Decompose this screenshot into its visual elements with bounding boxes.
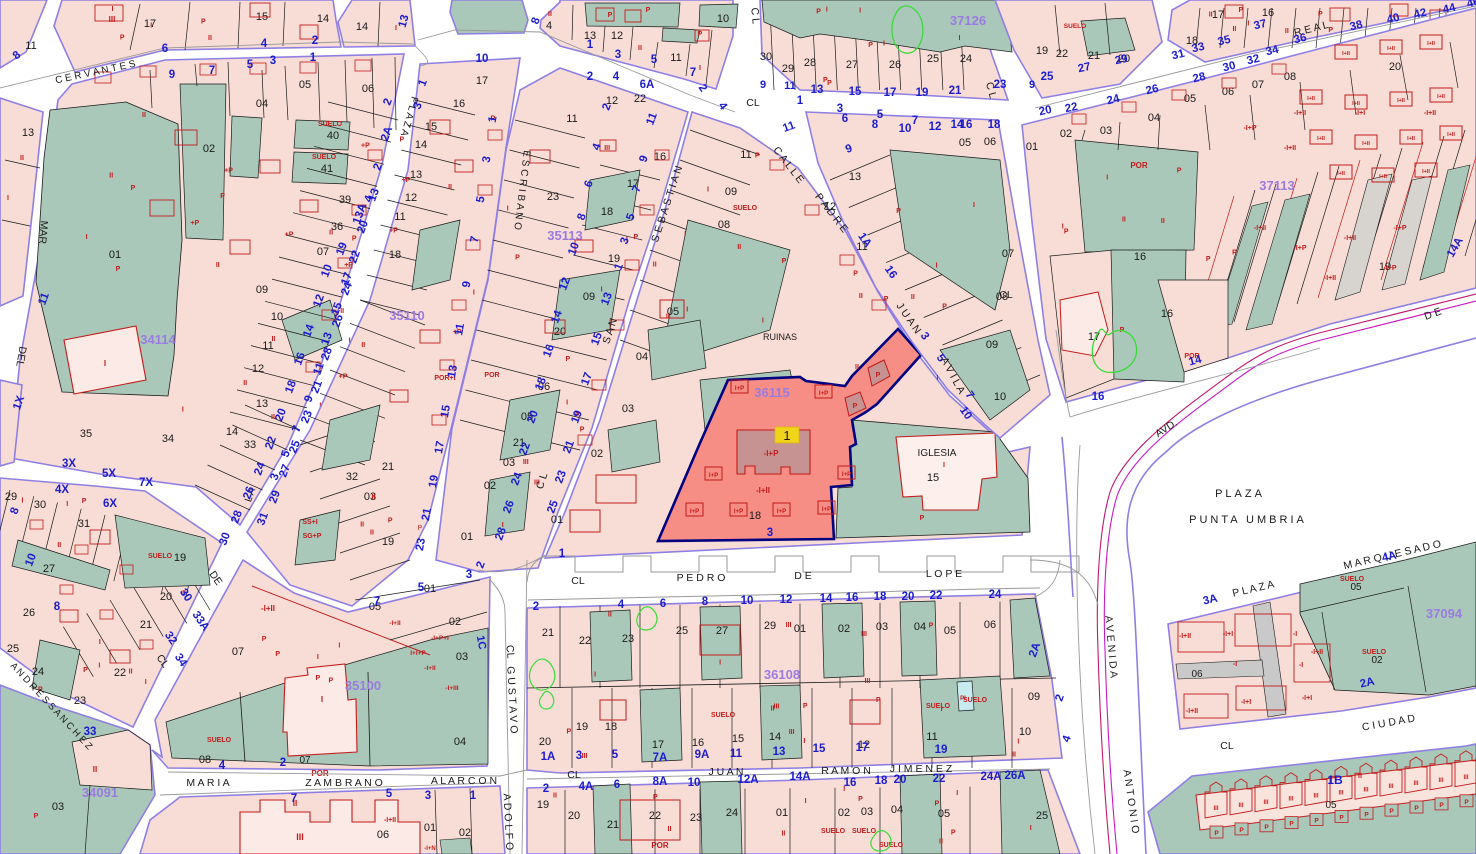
svg-text:9: 9 <box>760 79 766 91</box>
svg-text:03: 03 <box>52 801 64 813</box>
svg-text:-I+II: -I+II <box>756 486 770 495</box>
svg-text:24: 24 <box>32 666 44 678</box>
svg-text:-I+II: -I+II <box>1186 708 1198 715</box>
svg-text:I: I <box>507 206 509 213</box>
svg-text:SUELO: SUELO <box>821 828 846 835</box>
svg-text:04: 04 <box>914 621 926 633</box>
svg-text:II: II <box>737 244 741 251</box>
svg-text:25: 25 <box>1036 810 1048 822</box>
svg-text:I+II: I+II <box>1337 171 1345 177</box>
svg-text:II: II <box>1161 218 1165 225</box>
svg-text:III: III <box>1263 800 1268 806</box>
svg-text:1A: 1A <box>541 751 556 763</box>
svg-text:II: II <box>57 542 61 549</box>
svg-text:I: I <box>1017 738 1019 745</box>
svg-text:I+II: I+II <box>1447 132 1455 138</box>
svg-text:III: III <box>861 631 867 638</box>
svg-text:P: P <box>755 153 760 160</box>
svg-text:P: P <box>120 35 125 42</box>
svg-text:I: I <box>150 22 152 29</box>
svg-text:-I+II: -I+II <box>1179 633 1191 640</box>
svg-text:III: III <box>789 729 795 736</box>
svg-text:12: 12 <box>252 363 264 375</box>
svg-text:SUELO: SUELO <box>207 737 232 744</box>
svg-text:SUELO: SUELO <box>711 712 736 719</box>
svg-text:14: 14 <box>317 13 329 25</box>
svg-text:II: II <box>448 184 452 191</box>
svg-text:P: P <box>388 517 393 524</box>
svg-text:17: 17 <box>884 87 897 99</box>
svg-text:07: 07 <box>299 755 311 766</box>
svg-text:02: 02 <box>1371 655 1383 666</box>
svg-text:35113: 35113 <box>547 228 582 243</box>
svg-text:-I+III: -I+III <box>445 685 458 692</box>
svg-text:11: 11 <box>926 731 937 743</box>
svg-text:21: 21 <box>607 819 619 831</box>
svg-text:02: 02 <box>591 448 603 460</box>
svg-text:09: 09 <box>1028 691 1040 703</box>
svg-text:03: 03 <box>622 403 634 415</box>
svg-text:CL: CL <box>503 645 516 660</box>
svg-text:12: 12 <box>780 594 793 606</box>
svg-text:I: I <box>1106 175 1108 182</box>
svg-text:18: 18 <box>605 721 617 733</box>
svg-text:19: 19 <box>1036 45 1048 57</box>
svg-text:P: P <box>566 729 571 736</box>
svg-text:12: 12 <box>611 30 623 42</box>
svg-text:07: 07 <box>317 246 329 258</box>
svg-text:04: 04 <box>454 736 466 748</box>
svg-text:P: P <box>1364 811 1369 818</box>
svg-text:7: 7 <box>912 115 918 127</box>
svg-text:25: 25 <box>7 643 19 655</box>
svg-text:31: 31 <box>78 518 90 530</box>
svg-text:I: I <box>66 501 68 508</box>
svg-text:I: I <box>684 231 686 238</box>
svg-text:02: 02 <box>449 616 461 628</box>
svg-text:I+P: I+P <box>819 391 828 397</box>
svg-text:27: 27 <box>43 563 55 575</box>
svg-text:SS+I: SS+I <box>302 519 317 526</box>
svg-text:P: P <box>1314 818 1319 825</box>
svg-text:POR: POR <box>484 372 499 379</box>
svg-text:02: 02 <box>838 807 850 819</box>
svg-text:POR: POR <box>1130 161 1148 170</box>
svg-text:3: 3 <box>615 49 621 61</box>
svg-text:26A: 26A <box>1004 770 1025 782</box>
svg-text:III: III <box>1438 778 1443 784</box>
svg-text:I+II: I+II <box>1427 41 1435 47</box>
svg-text:20: 20 <box>160 591 172 603</box>
svg-text:I: I <box>941 706 943 713</box>
svg-text:-I+II: -I+II <box>1344 235 1356 242</box>
svg-text:37113: 37113 <box>1259 178 1294 193</box>
svg-text:6: 6 <box>162 43 168 55</box>
svg-text:27: 27 <box>846 59 858 71</box>
svg-text:III: III <box>523 459 529 466</box>
svg-text:I: I <box>958 35 960 42</box>
svg-text:03: 03 <box>861 806 873 818</box>
svg-text:5: 5 <box>386 788 393 800</box>
svg-text:17: 17 <box>476 75 488 87</box>
svg-text:15: 15 <box>813 743 826 755</box>
svg-text:01: 01 <box>424 583 436 595</box>
svg-text:-I+II: -I+II <box>384 817 396 824</box>
svg-text:4: 4 <box>618 599 625 611</box>
svg-text:I+II: I+II <box>1342 51 1350 57</box>
svg-text:II: II <box>608 612 612 619</box>
svg-text:9A: 9A <box>695 749 710 761</box>
svg-text:10: 10 <box>271 311 283 323</box>
svg-text:I+II: I+II <box>1437 94 1445 100</box>
svg-text:+P: +P <box>190 220 199 227</box>
svg-text:P: P <box>1464 799 1469 806</box>
svg-text:I+I+P: I+I+P <box>410 650 426 657</box>
svg-text:27: 27 <box>716 625 728 637</box>
svg-text:01: 01 <box>776 807 788 819</box>
svg-text:P: P <box>876 372 881 379</box>
svg-text:I+P: I+P <box>735 386 744 392</box>
svg-text:II: II <box>243 380 247 387</box>
svg-text:41: 41 <box>321 163 333 175</box>
svg-text:II: II <box>1012 752 1016 759</box>
svg-text:20: 20 <box>554 326 566 338</box>
svg-text:17: 17 <box>856 742 869 754</box>
svg-text:II: II <box>361 342 365 349</box>
svg-text:P: P <box>275 651 280 658</box>
svg-text:II: II <box>553 793 557 800</box>
svg-text:II: II <box>1358 773 1362 780</box>
svg-text:P: P <box>580 427 585 434</box>
svg-text:7A: 7A <box>653 752 668 764</box>
svg-text:09: 09 <box>725 186 737 198</box>
svg-text:23: 23 <box>414 537 428 552</box>
svg-text:P: P <box>853 403 858 410</box>
svg-text:II: II <box>329 229 333 236</box>
svg-text:CL: CL <box>571 575 585 587</box>
svg-text:P: P <box>220 193 225 200</box>
svg-text:4: 4 <box>219 760 226 772</box>
svg-text:II: II <box>142 112 146 119</box>
svg-text:I: I <box>112 6 114 13</box>
svg-text:09: 09 <box>256 284 268 296</box>
svg-text:-I+N: -I+N <box>424 846 436 852</box>
svg-text:R A M O N: R A M O N <box>821 765 871 777</box>
svg-text:02: 02 <box>459 827 471 839</box>
svg-text:I: I <box>182 407 184 414</box>
svg-text:21: 21 <box>949 85 962 97</box>
svg-text:I: I <box>473 289 475 296</box>
svg-text:11: 11 <box>394 211 405 223</box>
svg-text:8: 8 <box>54 601 61 613</box>
svg-text:+P: +P <box>361 142 370 149</box>
svg-text:I+P: I+P <box>709 473 718 479</box>
svg-text:I+II: I+II <box>1422 169 1430 175</box>
svg-text:23: 23 <box>622 633 634 645</box>
svg-text:21: 21 <box>542 627 554 639</box>
svg-text:II: II <box>109 172 113 179</box>
svg-text:I: I <box>699 65 701 72</box>
svg-text:SUELO: SUELO <box>312 154 337 161</box>
svg-text:4X: 4X <box>55 484 69 496</box>
svg-text:13: 13 <box>446 364 460 379</box>
svg-text:13: 13 <box>849 171 861 183</box>
svg-text:II: II <box>638 45 642 52</box>
svg-text:SUELO: SUELO <box>1064 23 1086 30</box>
svg-text:2: 2 <box>280 757 286 769</box>
svg-text:P: P <box>1439 802 1444 809</box>
svg-text:III: III <box>1338 790 1343 796</box>
svg-text:09: 09 <box>583 291 595 303</box>
svg-text:01: 01 <box>1026 141 1038 153</box>
svg-text:I: I <box>826 6 828 13</box>
svg-text:8: 8 <box>872 119 879 131</box>
svg-text:17: 17 <box>652 739 664 751</box>
svg-text:12A: 12A <box>737 774 758 786</box>
svg-text:P: P <box>1177 168 1182 175</box>
svg-text:II: II <box>855 364 859 371</box>
svg-text:P: P <box>1389 808 1394 815</box>
svg-text:II: II <box>372 494 376 501</box>
svg-text:16: 16 <box>960 119 973 131</box>
svg-text:II: II <box>548 11 552 18</box>
svg-text:-I: -I <box>1299 662 1303 669</box>
svg-text:II: II <box>781 830 785 837</box>
svg-text:P: P <box>935 800 940 807</box>
svg-text:24A: 24A <box>980 771 1001 783</box>
svg-text:I: I <box>686 307 688 314</box>
svg-text:III: III <box>1463 775 1468 781</box>
svg-text:07: 07 <box>232 646 244 658</box>
svg-text:16: 16 <box>1092 391 1105 403</box>
svg-text:16: 16 <box>846 592 859 604</box>
svg-text:5X: 5X <box>102 468 116 480</box>
svg-text:CL: CL <box>567 769 581 781</box>
svg-text:P: P <box>418 525 423 532</box>
svg-text:III: III <box>1363 787 1368 793</box>
svg-text:II: II <box>93 765 97 774</box>
svg-text:6: 6 <box>614 779 620 791</box>
svg-text:PLAZA: PLAZA <box>1215 488 1265 500</box>
svg-text:-I+II: -I+II <box>1254 225 1266 232</box>
svg-text:+P: +P <box>224 167 233 174</box>
svg-text:-I+P: -I+P <box>1383 265 1396 272</box>
svg-text:CL: CL <box>999 289 1013 301</box>
svg-text:II: II <box>1122 217 1126 224</box>
svg-text:I: I <box>707 187 709 194</box>
svg-text:III: III <box>1388 784 1393 790</box>
svg-text:17: 17 <box>433 440 447 455</box>
svg-text:I+II: I+II <box>1407 136 1415 142</box>
svg-text:15: 15 <box>425 121 437 133</box>
svg-text:III: III <box>1288 797 1293 803</box>
svg-text:14: 14 <box>769 731 781 743</box>
svg-text:19: 19 <box>576 721 588 733</box>
svg-text:4: 4 <box>546 20 552 32</box>
svg-text:05: 05 <box>959 137 971 149</box>
svg-text:10: 10 <box>899 123 912 135</box>
svg-text:D E: D E <box>794 570 812 582</box>
svg-text:P: P <box>803 703 808 710</box>
svg-text:39: 39 <box>339 194 351 206</box>
svg-text:II: II <box>859 293 863 300</box>
svg-text:7: 7 <box>291 793 297 805</box>
svg-text:20: 20 <box>894 774 907 786</box>
svg-text:III: III <box>1213 806 1218 812</box>
svg-text:22: 22 <box>579 635 591 647</box>
svg-text:23: 23 <box>547 191 559 203</box>
svg-text:21: 21 <box>382 461 394 473</box>
svg-text:I: I <box>86 234 88 241</box>
svg-text:I: I <box>1030 825 1032 832</box>
svg-text:III: III <box>1313 794 1318 800</box>
svg-text:P: P <box>399 136 404 143</box>
svg-text:I: I <box>936 375 938 382</box>
svg-text:I: I <box>321 695 323 704</box>
svg-text:14: 14 <box>820 593 833 605</box>
svg-text:19: 19 <box>537 799 549 811</box>
svg-text:I: I <box>145 679 147 686</box>
svg-text:11: 11 <box>566 113 577 125</box>
svg-text:46: 46 <box>1466 0 1476 10</box>
svg-text:16: 16 <box>1134 251 1146 263</box>
svg-text:6A: 6A <box>640 79 655 91</box>
svg-text:P: P <box>827 80 832 87</box>
svg-text:37126: 37126 <box>950 13 986 28</box>
svg-text:P E D R O: P E D R O <box>677 572 726 584</box>
svg-text:1: 1 <box>559 548 566 560</box>
svg-text:02: 02 <box>838 623 850 635</box>
svg-text:24: 24 <box>960 53 972 65</box>
svg-text:18: 18 <box>875 775 888 787</box>
svg-text:4: 4 <box>613 71 620 83</box>
svg-text:11: 11 <box>784 80 796 92</box>
svg-text:01: 01 <box>551 514 563 526</box>
svg-text:7: 7 <box>374 596 380 608</box>
svg-text:20: 20 <box>568 810 580 822</box>
svg-text:I: I <box>883 41 885 48</box>
svg-text:15: 15 <box>849 86 862 98</box>
svg-text:26: 26 <box>889 59 901 71</box>
svg-text:3: 3 <box>270 55 276 67</box>
svg-text:-I+P: -I+P <box>1293 245 1306 252</box>
svg-text:19: 19 <box>427 474 441 489</box>
svg-text:21: 21 <box>1088 50 1100 62</box>
svg-text:01: 01 <box>794 623 806 635</box>
svg-text:19: 19 <box>174 552 186 564</box>
svg-text:+P: +P <box>339 374 348 381</box>
svg-text:P: P <box>1232 249 1237 256</box>
svg-text:03: 03 <box>456 651 468 663</box>
svg-text:II: II <box>1209 11 1213 18</box>
svg-text:I+P: I+P <box>822 507 831 513</box>
svg-text:6: 6 <box>660 598 666 610</box>
svg-text:I: I <box>7 195 9 202</box>
svg-text:3: 3 <box>576 750 582 762</box>
svg-text:2: 2 <box>543 783 549 795</box>
svg-text:I: I <box>99 639 101 646</box>
svg-text:34: 34 <box>162 433 174 445</box>
svg-text:I+II: I+II <box>1307 96 1315 102</box>
svg-text:POR: POR <box>651 841 669 850</box>
svg-text:I: I <box>936 262 938 269</box>
svg-text:04: 04 <box>256 98 268 110</box>
svg-text:II: II <box>666 314 670 321</box>
svg-text:05: 05 <box>938 808 950 820</box>
svg-text:15: 15 <box>927 472 939 484</box>
svg-text:RUINAS: RUINAS <box>763 332 797 342</box>
svg-text:P: P <box>131 185 136 192</box>
svg-text:33: 33 <box>244 439 256 451</box>
svg-text:24: 24 <box>989 589 1002 601</box>
svg-text:P: P <box>608 12 613 19</box>
svg-text:I: I <box>805 798 807 805</box>
svg-text:I: I <box>943 462 945 469</box>
svg-text:I: I <box>98 662 100 669</box>
svg-text:29: 29 <box>764 620 776 632</box>
svg-text:SUELO: SUELO <box>963 697 988 704</box>
svg-text:13: 13 <box>773 746 786 758</box>
svg-text:-I+II: -I+II <box>261 604 275 613</box>
svg-text:P: P <box>83 667 88 674</box>
svg-text:23: 23 <box>994 79 1007 91</box>
svg-text:I+II: I+II <box>1397 98 1405 104</box>
svg-text:-I+P+I: -I+P+I <box>431 635 449 642</box>
svg-text:-I+II: -I+II <box>424 665 436 672</box>
svg-text:07: 07 <box>1002 248 1014 260</box>
svg-text:3: 3 <box>425 790 431 802</box>
svg-text:SG+P: SG+P <box>303 533 322 540</box>
svg-text:02: 02 <box>484 480 496 492</box>
svg-text:25: 25 <box>1041 71 1054 83</box>
svg-text:17: 17 <box>1212 9 1224 21</box>
svg-text:30: 30 <box>34 499 46 511</box>
svg-text:35110: 35110 <box>389 308 424 323</box>
svg-text:04: 04 <box>891 804 903 816</box>
svg-text:7X: 7X <box>139 477 153 489</box>
svg-text:34091: 34091 <box>82 785 118 800</box>
svg-text:19: 19 <box>382 536 394 548</box>
svg-text:1: 1 <box>587 39 594 51</box>
svg-text:CL: CL <box>1220 740 1234 752</box>
svg-text:-I+P: -I+P <box>764 449 780 458</box>
svg-text:P: P <box>262 636 267 643</box>
svg-text:PUNTA UMBRIA: PUNTA UMBRIA <box>1189 514 1307 526</box>
svg-text:8: 8 <box>702 596 709 608</box>
svg-text:I: I <box>594 671 596 678</box>
svg-text:-I+II: -I+II <box>1424 110 1436 117</box>
svg-text:I+II: I+II <box>1352 101 1360 107</box>
svg-text:I+P: I+P <box>842 472 851 478</box>
svg-text:I+II: I+II <box>1362 141 1370 147</box>
svg-text:9: 9 <box>169 69 175 81</box>
svg-text:3X: 3X <box>62 458 76 470</box>
svg-text:11: 11 <box>670 52 681 64</box>
svg-text:35: 35 <box>80 428 92 440</box>
svg-text:I+P: I+P <box>690 509 699 515</box>
svg-text:A L A R C O N: A L A R C O N <box>431 775 497 787</box>
svg-text:P: P <box>920 515 925 522</box>
svg-text:37094: 37094 <box>1426 606 1463 621</box>
svg-text:9: 9 <box>1029 79 1035 91</box>
svg-text:08: 08 <box>718 219 730 231</box>
svg-text:II: II <box>208 35 212 42</box>
svg-text:P: P <box>1339 814 1344 821</box>
svg-text:30: 30 <box>760 51 772 63</box>
svg-text:18: 18 <box>988 119 1001 131</box>
svg-text:III: III <box>1238 803 1243 809</box>
svg-text:05: 05 <box>1350 582 1362 593</box>
